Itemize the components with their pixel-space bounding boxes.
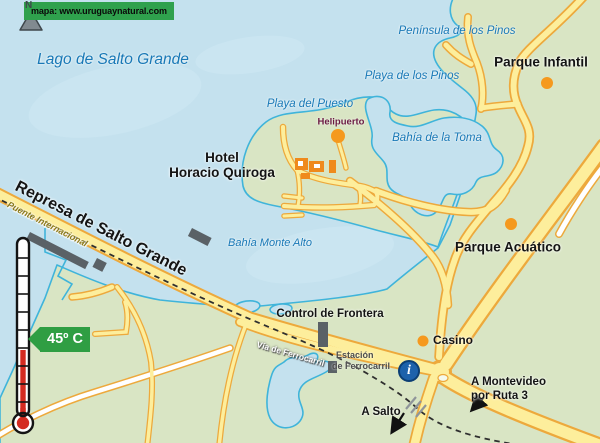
label-a-salto: A Salto [361, 406, 400, 418]
label-hotel-horacio-quiroga: Hotel Horacio Quiroga [169, 150, 275, 180]
label-control-de-frontera: Control de Frontera [276, 308, 383, 320]
label-bahia-de-la-toma: Bahía de la Toma [392, 132, 482, 144]
label-lago-de-salto-grande: Lago de Salto Grande [37, 51, 189, 69]
label-estacion-de-ferrocarril: Estación de Ferrocarril [332, 350, 390, 372]
label-peninsula-de-los-pinos: Península de los Pinos [399, 25, 516, 37]
border-control-building [318, 322, 328, 347]
map-source-banner: mapa: www.uruguaynatural.com [24, 2, 174, 20]
hotel-label-line1: Hotel [169, 150, 275, 165]
label-a-montevideo-por-ruta-3: A Montevideo por Ruta 3 [471, 376, 546, 403]
hotel-label-line2: Horacio Quiroga [169, 165, 275, 180]
label-helipuerto: Helipuerto [318, 117, 365, 128]
label-playa-de-los-pinos: Playa de los Pinos [365, 70, 460, 82]
montevideo-label-line1: A Montevideo [471, 376, 546, 390]
temperature-tag: 45º C [40, 327, 90, 352]
estacion-label-line1: Estación [332, 350, 390, 361]
montevideo-label-line2: por Ruta 3 [471, 390, 546, 404]
info-icon: i [398, 360, 420, 382]
label-bahia-monte-alto: Bahía Monte Alto [228, 237, 312, 249]
label-parque-infantil: Parque Infantil [494, 55, 588, 70]
poi-dot-helipuerto [331, 129, 345, 143]
poi-dot-parque-infantil [541, 77, 553, 89]
label-playa-del-puesto: Playa del Puesto [267, 98, 353, 110]
roundabout-center [438, 375, 448, 382]
tourist-map-salto-grande: mapa: www.uruguaynatural.com N Lago de S… [0, 0, 600, 443]
poi-dot-casino [418, 336, 429, 347]
label-casino: Casino [433, 333, 473, 347]
label-parque-acuatico: Parque Acuático [455, 240, 561, 255]
compass-north-label: N [25, 0, 32, 11]
poi-dot-parque-acuatico [505, 218, 517, 230]
estacion-label-line2: de Ferrocarril [332, 361, 390, 372]
